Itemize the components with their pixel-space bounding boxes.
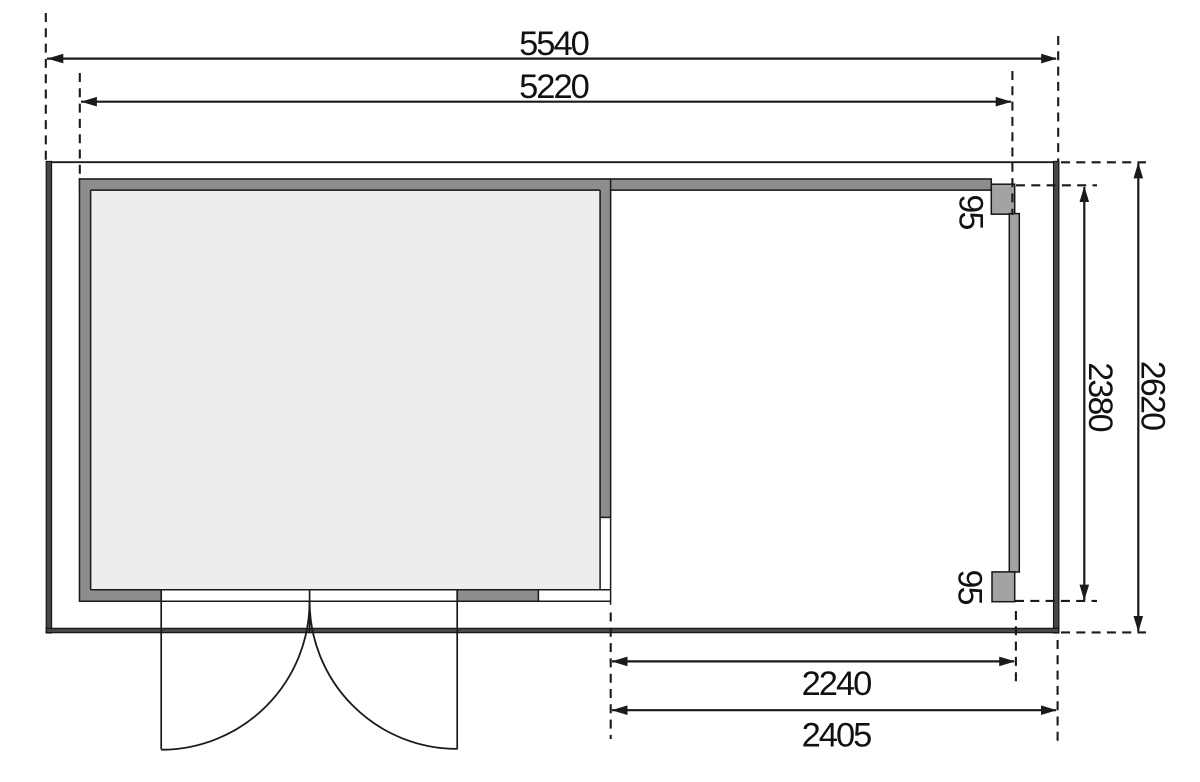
svg-text:5540: 5540: [519, 25, 589, 63]
svg-text:95: 95: [952, 194, 990, 229]
svg-text:95: 95: [951, 569, 989, 604]
svg-text:2240: 2240: [802, 665, 872, 703]
svg-text:2405: 2405: [802, 716, 872, 754]
svg-text:2620: 2620: [1134, 361, 1172, 430]
svg-text:5220: 5220: [519, 68, 589, 106]
svg-text:2380: 2380: [1081, 362, 1119, 431]
